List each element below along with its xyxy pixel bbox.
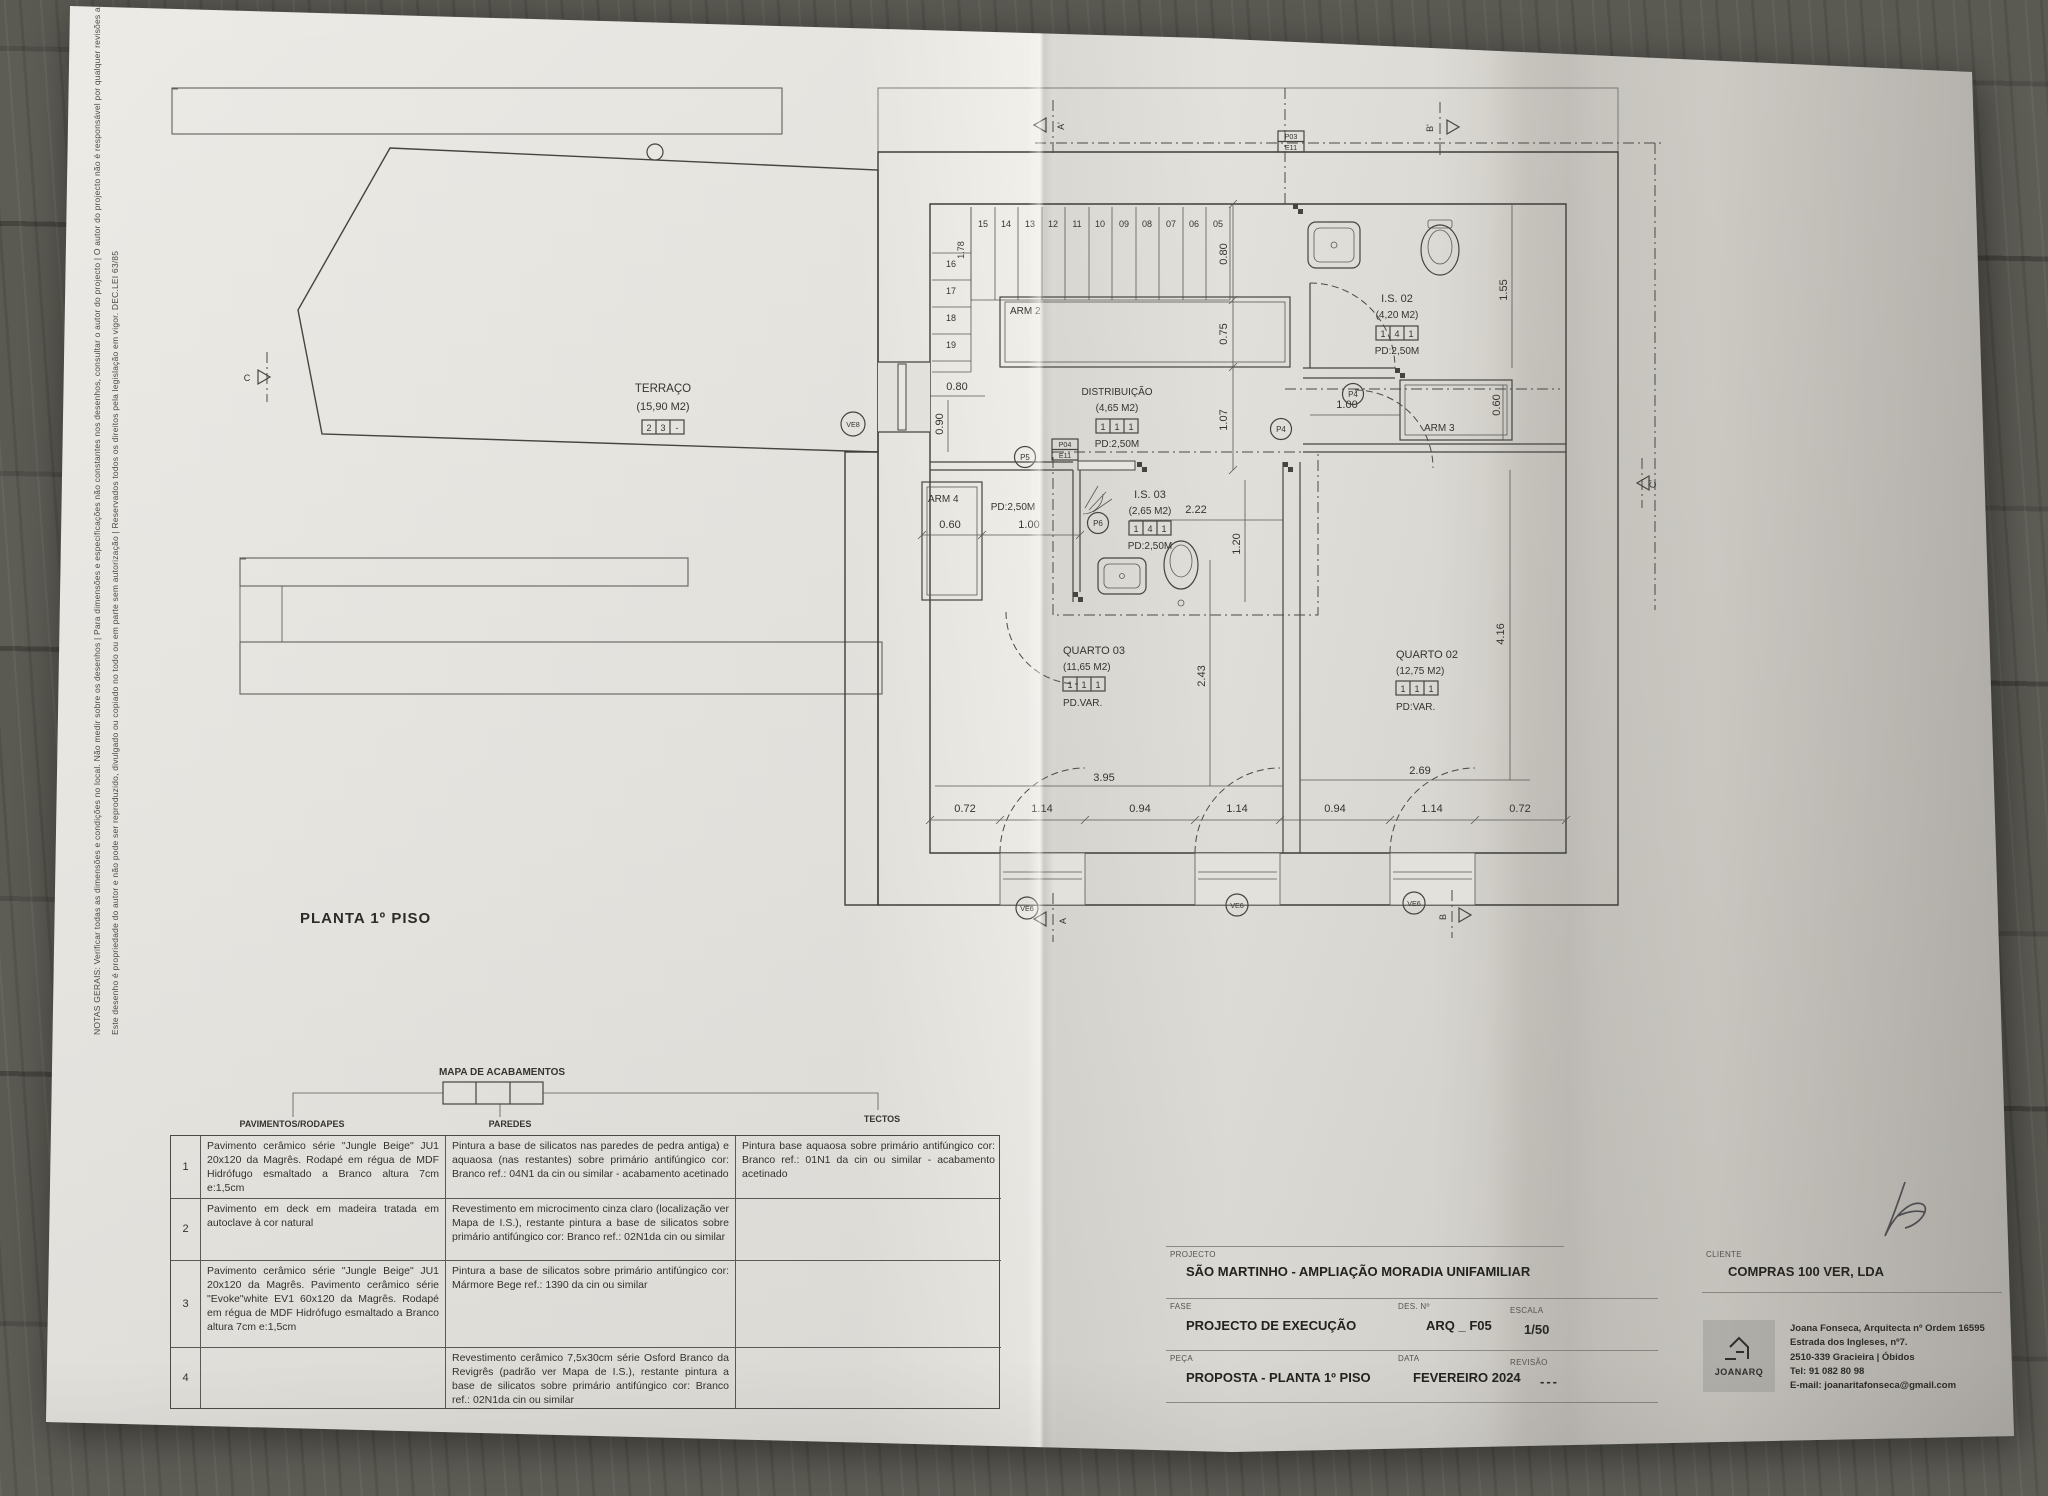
fase-label: FASE xyxy=(1170,1302,1192,1311)
tectos-cell xyxy=(736,1348,1001,1408)
des-value: ARQ _ F05 xyxy=(1426,1318,1492,1333)
room-pd: PD:2,50M xyxy=(1128,541,1172,552)
dim: 0.90 xyxy=(934,413,946,434)
marker-b-bottom: B xyxy=(1438,914,1448,920)
dim: 1.14 xyxy=(1421,803,1442,815)
room-pd: PD:2,50M xyxy=(1095,439,1139,450)
stair-number: 11 xyxy=(1072,219,1081,229)
dim: 1.14 xyxy=(1031,803,1052,815)
finish-code: 1 xyxy=(1081,680,1086,690)
stair-number: 06 xyxy=(1189,219,1199,229)
plan-caption: PLANTA 1º PISO xyxy=(300,910,431,927)
room-pd: PD.VAR. xyxy=(1063,698,1102,709)
escala-label: ESCALA xyxy=(1510,1306,1543,1315)
revisao-label: REVISÃO xyxy=(1510,1358,1548,1367)
room-name: QUARTO 02 xyxy=(1396,649,1458,661)
joanarq-logo: JOANARQ xyxy=(1703,1320,1775,1392)
title-block: PROJECTO SÃO MARTINHO - AMPLIAÇÃO MORADI… xyxy=(1158,1240,2003,1415)
cliente-value: COMPRAS 100 VER, LDA xyxy=(1728,1264,1884,1279)
room-area: (12,75 M2) xyxy=(1396,666,1444,677)
finish-map-table: 1 Pavimento cerâmico série "Jungle Beige… xyxy=(170,1135,1000,1409)
photo-of-floor-plan: 15 14 13 12 11 10 09 08 07 06 05 16 17 1… xyxy=(0,0,2048,1496)
dim: 1.00 xyxy=(1336,399,1357,411)
row-number: 2 xyxy=(171,1199,201,1261)
pavimentos-cell: Pavimento cerâmico série "Jungle Beige" … xyxy=(201,1136,446,1199)
paredes-cell: Pintura a base de silicatos sobre primár… xyxy=(446,1261,736,1348)
architect-line: E-mail: joanaritafonseca@gmail.com xyxy=(1790,1379,1985,1393)
dim: 0.80 xyxy=(1218,243,1230,264)
tag-ve6: VE6 xyxy=(1230,901,1244,910)
peca-value: PROPOSTA - PLANTA 1º PISO xyxy=(1186,1370,1371,1385)
dim: 0.94 xyxy=(1324,803,1345,815)
dim: 2.22 xyxy=(1185,504,1206,516)
dim: 0.72 xyxy=(1509,803,1530,815)
finish-code: 1 xyxy=(1161,524,1166,534)
closet-label: ARM 2 xyxy=(1010,306,1041,317)
svg-text:P04: P04 xyxy=(1059,440,1072,449)
room-name: I.S. 03 xyxy=(1134,489,1166,501)
room-name: DISTRIBUIÇÃO xyxy=(1081,385,1152,398)
stair-number: 16 xyxy=(946,259,956,269)
architect-line: Estrada dos Ingleses, nº7. xyxy=(1790,1336,1985,1350)
dim: 1.20 xyxy=(1231,533,1243,554)
tag-p4: P4 xyxy=(1276,425,1286,434)
tag-p4: P4 xyxy=(1348,390,1358,399)
dim: 2.69 xyxy=(1409,765,1430,777)
data-label: DATA xyxy=(1398,1354,1419,1363)
room-name: TERRAÇO xyxy=(635,383,691,395)
finish-code: 4 xyxy=(1147,524,1152,534)
stair-number: 12 xyxy=(1048,219,1058,229)
projecto-label: PROJECTO xyxy=(1170,1250,1216,1259)
projecto-value: SÃO MARTINHO - AMPLIAÇÃO MORADIA UNIFAMI… xyxy=(1186,1264,1530,1279)
column-header-tectos: TECTOS xyxy=(864,1114,900,1124)
finish-code: 1 xyxy=(1408,329,1413,339)
svg-text:P03: P03 xyxy=(1285,132,1298,141)
dim: 1.55 xyxy=(1498,279,1510,300)
room-area: (15,90 M2) xyxy=(636,401,689,413)
stair-number: 08 xyxy=(1142,219,1152,229)
closet-arm4: ARM 4 xyxy=(922,482,982,600)
finish-code: - xyxy=(676,423,679,433)
dim: 1.14 xyxy=(1226,803,1247,815)
tag-p04-e11: P04 E11 xyxy=(1052,439,1078,460)
dim: 0.80 xyxy=(946,381,967,393)
pavimentos-cell xyxy=(201,1348,446,1408)
closet-arm2: ARM 2 xyxy=(1000,297,1290,367)
room-label-distribuicao: DISTRIBUIÇÃO (4,65 M2) 1 1 1 PD:2,50M xyxy=(1081,385,1152,450)
sink xyxy=(1308,222,1360,268)
finish-code: 1 xyxy=(1114,422,1119,432)
cliente-label: CLIENTE xyxy=(1706,1250,1742,1259)
finish-code: 1 xyxy=(1100,422,1105,432)
marker-c-left: C xyxy=(244,373,251,383)
terrace xyxy=(240,144,882,694)
peca-label: PEÇA xyxy=(1170,1354,1193,1363)
data-value: FEVEREIRO 2024 xyxy=(1413,1370,1521,1385)
tag-ve6: VE6 xyxy=(1407,899,1421,908)
room-pd: PD:VAR. xyxy=(1396,702,1435,713)
house-icon xyxy=(1722,1335,1756,1365)
escala-value: 1/50 xyxy=(1524,1322,1549,1337)
folded-drawing-sheet: 15 14 13 12 11 10 09 08 07 06 05 16 17 1… xyxy=(0,0,2048,1496)
revisao-value: --- xyxy=(1540,1374,1559,1389)
finish-code: 4 xyxy=(1394,329,1399,339)
finish-code: 1 xyxy=(1414,684,1419,694)
tag-ve6: VE6 xyxy=(1020,904,1034,913)
dim: 1.07 xyxy=(1218,409,1230,430)
column-header-paredes: PAREDES xyxy=(489,1119,532,1129)
finish-code: 1 xyxy=(1095,680,1100,690)
dim: 1.00 xyxy=(1018,519,1039,531)
dim: 2.43 xyxy=(1196,665,1208,686)
finish-map-title: MAPA DE ACABAMENTOS xyxy=(439,1067,565,1078)
logo-text: JOANARQ xyxy=(1715,1367,1764,1377)
marker-a-top: A' xyxy=(1056,122,1066,130)
fase-value: PROJECTO DE EXECUÇÃO xyxy=(1186,1318,1356,1333)
closet-label: ARM 3 xyxy=(1424,423,1455,434)
building-walls xyxy=(845,152,1618,905)
room-label-is03: I.S. 03 (2,65 M2) 1 4 1 PD:2,50M xyxy=(1128,489,1172,552)
tag-ve8: VE8 xyxy=(846,420,860,429)
room-label-quarto02: QUARTO 02 (12,75 M2) 1 1 1 PD:VAR. xyxy=(1396,649,1458,713)
stair-number: 17 xyxy=(946,286,956,296)
architect-info: Joana Fonseca, Arquitecta nº Ordem 16595… xyxy=(1790,1322,1985,1393)
finish-code: 1 xyxy=(1400,684,1405,694)
tag-p6: P6 xyxy=(1093,519,1103,528)
tectos-cell: Pintura base aquaosa sobre primário anti… xyxy=(736,1136,1001,1199)
sink xyxy=(1098,558,1146,594)
pavimentos-cell: Pavimento em deck em madeira tratada em … xyxy=(201,1199,446,1261)
dim: 0.60 xyxy=(939,519,960,531)
stair-number: 14 xyxy=(1001,219,1011,229)
dim-stair-height: 1.78 xyxy=(956,241,966,259)
room-name: QUARTO 03 xyxy=(1063,645,1125,657)
stair-number: 05 xyxy=(1213,219,1223,229)
finish-code: 1 xyxy=(1428,684,1433,694)
finish-map-tree: MAPA DE ACABAMENTOS PAVIMENTOS/RODAPES P… xyxy=(239,1067,900,1129)
column-header-pavimentos: PAVIMENTOS/RODAPES xyxy=(239,1119,344,1129)
finish-code: 1 xyxy=(1128,422,1133,432)
general-notes-line1: NOTAS GERAIS: Verificar todas as dimensõ… xyxy=(92,175,102,1035)
stair-number: 18 xyxy=(946,313,956,323)
signature-mark xyxy=(1885,1182,1925,1236)
paredes-cell: Revestimento cerâmico 7,5x30cm série Osf… xyxy=(446,1348,736,1408)
marker-b-top: B' xyxy=(1425,124,1435,132)
tectos-cell xyxy=(736,1199,1001,1261)
stair-number: 15 xyxy=(978,219,988,229)
dim: 4.16 xyxy=(1495,623,1507,644)
shower-icon xyxy=(1083,486,1112,514)
room-label-quarto03: QUARTO 03 (11,65 M2) 1 1 1 PD.VAR. xyxy=(1063,645,1125,709)
stair-number: 13 xyxy=(1025,219,1035,229)
finish-code: 1 xyxy=(1133,524,1138,534)
room-name: I.S. 02 xyxy=(1381,293,1413,305)
general-notes-line2: Este desenho é propriedade do autor e nã… xyxy=(110,175,120,1035)
terrace-column xyxy=(647,144,663,160)
stair-number: 07 xyxy=(1166,219,1176,229)
stair-number: 09 xyxy=(1119,219,1129,229)
marker-a-bottom: A xyxy=(1058,918,1068,924)
dim: 0.60 xyxy=(1491,394,1503,415)
room-area: (2,65 M2) xyxy=(1129,506,1172,517)
closet-label: ARM 4 xyxy=(928,494,959,505)
dim: 0.72 xyxy=(954,803,975,815)
tag-p5: P5 xyxy=(1020,453,1030,462)
row-number: 4 xyxy=(171,1348,201,1408)
finish-code: 2 xyxy=(646,423,651,433)
row-number: 3 xyxy=(171,1261,201,1348)
finish-code: 3 xyxy=(660,423,665,433)
paredes-cell: Revestimento em microcimento cinza claro… xyxy=(446,1199,736,1261)
stairs: 15 14 13 12 11 10 09 08 07 06 05 16 17 1… xyxy=(932,207,1230,372)
svg-text:E11: E11 xyxy=(1059,451,1071,460)
paper-shadow-wrap: 15 14 13 12 11 10 09 08 07 06 05 16 17 1… xyxy=(0,0,2048,1496)
room-area: (11,65 M2) xyxy=(1063,662,1111,673)
room-label-is02: I.S. 02 (4,20 M2) 1 4 1 PD:2,50M xyxy=(1375,293,1419,357)
row-number: 1 xyxy=(171,1136,201,1199)
door-swings xyxy=(1006,390,1433,684)
room-pd: PD:2,50M xyxy=(1375,346,1419,357)
stair-number: 10 xyxy=(1095,219,1105,229)
des-label: DES. Nº xyxy=(1398,1302,1430,1311)
stair-number: 19 xyxy=(946,340,956,350)
dim: 0.75 xyxy=(1218,323,1230,344)
paredes-cell: Pintura a base de silicatos nas paredes … xyxy=(446,1136,736,1199)
marker-c-right: C' xyxy=(1648,480,1658,488)
architect-line: Tel: 91 082 80 98 xyxy=(1790,1365,1985,1379)
architect-line: Joana Fonseca, Arquitecta nº Ordem 16595 xyxy=(1790,1322,1985,1336)
architect-line: 2510-339 Gracieira | Óbidos xyxy=(1790,1351,1985,1365)
pavimentos-cell: Pavimento cerâmico série "Jungle Beige" … xyxy=(201,1261,446,1348)
dim: 3.95 xyxy=(1093,772,1114,784)
svg-text:E11: E11 xyxy=(1285,143,1297,152)
tectos-cell xyxy=(736,1261,1001,1348)
room-area: (4,65 M2) xyxy=(1096,403,1139,414)
corridor-pd-label: PD:2,50M xyxy=(991,502,1035,513)
finish-code: 1 xyxy=(1380,329,1385,339)
finish-code: 1 xyxy=(1067,680,1072,690)
room-area: (4,20 M2) xyxy=(1376,310,1419,321)
dim: 0.94 xyxy=(1129,803,1150,815)
toilet xyxy=(1421,225,1459,275)
